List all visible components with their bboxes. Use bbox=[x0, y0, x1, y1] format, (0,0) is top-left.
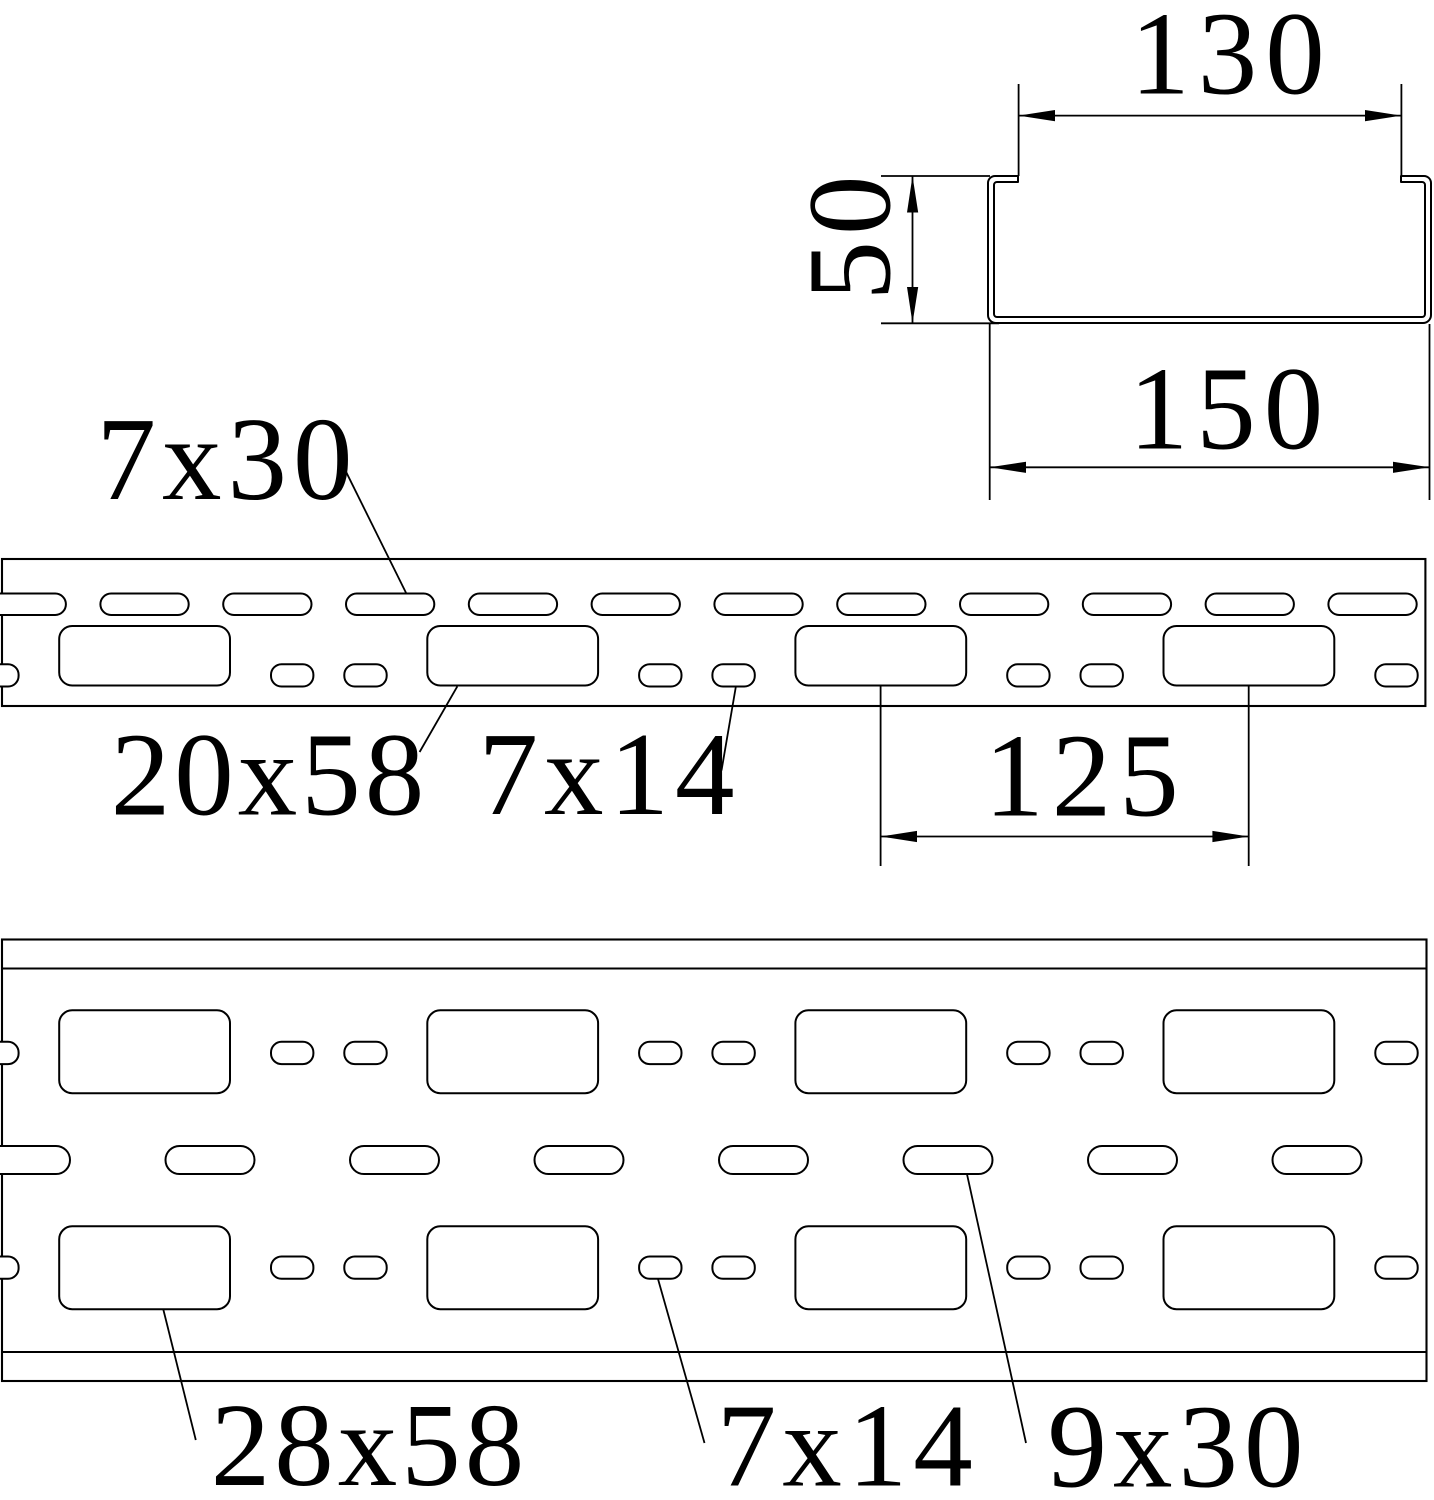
svg-text:50: 50 bbox=[784, 170, 916, 301]
svg-text:9x30: 9x30 bbox=[1048, 1380, 1310, 1500]
svg-text:7x14: 7x14 bbox=[479, 708, 741, 840]
svg-text:130: 130 bbox=[1130, 0, 1333, 119]
svg-text:7x30: 7x30 bbox=[97, 393, 359, 525]
svg-text:150: 150 bbox=[1129, 343, 1332, 475]
svg-text:7x14: 7x14 bbox=[717, 1380, 979, 1500]
svg-text:28x58: 28x58 bbox=[211, 1379, 529, 1500]
svg-text:20x58: 20x58 bbox=[111, 709, 429, 841]
svg-text:125: 125 bbox=[984, 710, 1187, 842]
